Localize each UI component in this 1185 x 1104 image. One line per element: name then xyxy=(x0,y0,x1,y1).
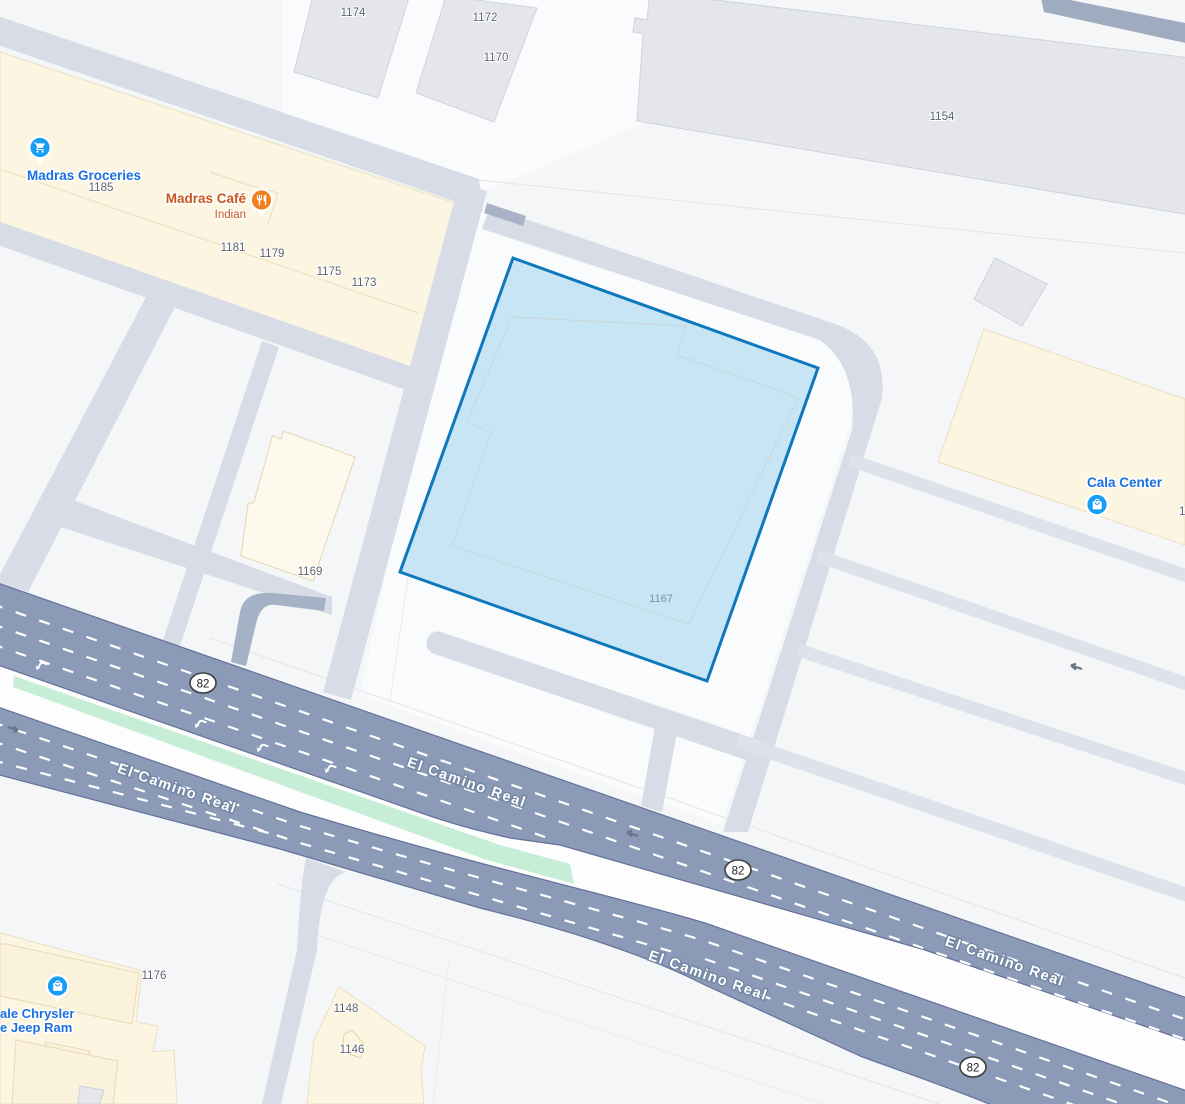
svg-text:Indian: Indian xyxy=(215,209,246,221)
svg-text:1172: 1172 xyxy=(473,12,498,24)
svg-text:1185: 1185 xyxy=(89,182,114,194)
svg-text:Madras Café: Madras Café xyxy=(166,191,247,206)
svg-text:1173: 1173 xyxy=(352,277,377,289)
svg-text:1181: 1181 xyxy=(221,242,246,254)
svg-text:11: 11 xyxy=(1179,506,1185,518)
svg-text:82: 82 xyxy=(197,679,210,691)
svg-text:1169: 1169 xyxy=(298,566,323,578)
svg-text:1148: 1148 xyxy=(334,1003,359,1015)
svg-text:82: 82 xyxy=(732,866,745,878)
svg-text:Cala Center: Cala Center xyxy=(1087,475,1163,490)
svg-text:1170: 1170 xyxy=(484,52,509,64)
svg-text:1179: 1179 xyxy=(260,248,285,260)
svg-text:1146: 1146 xyxy=(340,1044,365,1056)
svg-text:1175: 1175 xyxy=(317,266,342,278)
svg-text:Madras Groceries: Madras Groceries xyxy=(27,168,141,183)
svg-text:ale Chrysler: ale Chrysler xyxy=(0,1006,74,1021)
svg-text:82: 82 xyxy=(967,1063,980,1075)
svg-text:1174: 1174 xyxy=(341,7,366,19)
svg-text:e Jeep Ram: e Jeep Ram xyxy=(0,1020,72,1035)
svg-text:1176: 1176 xyxy=(142,970,167,982)
svg-text:1167: 1167 xyxy=(649,593,673,605)
svg-text:1154: 1154 xyxy=(930,111,955,123)
